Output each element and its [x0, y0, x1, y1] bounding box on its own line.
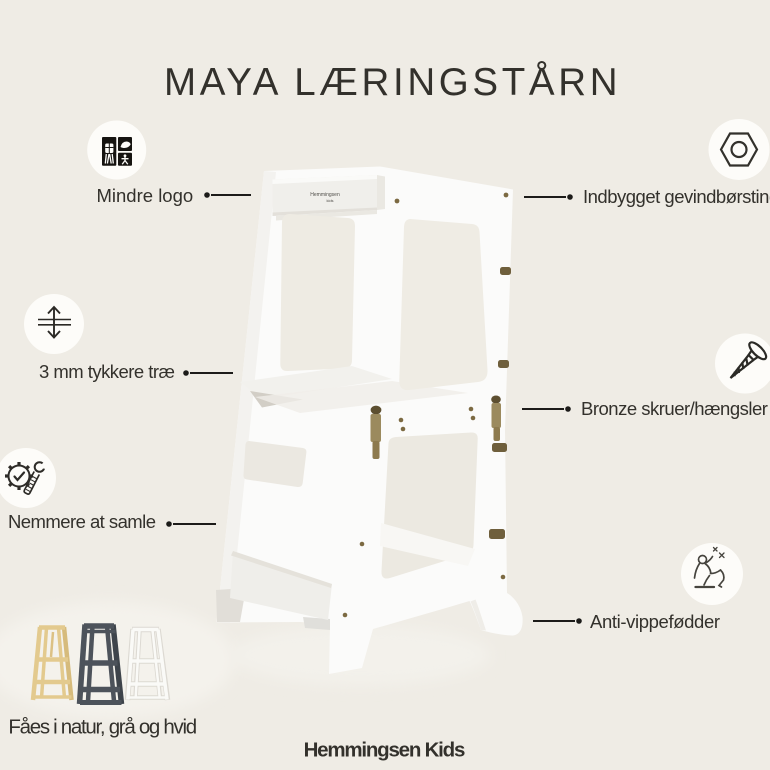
- svg-text:Mindre logo: Mindre logo: [97, 185, 194, 206]
- svg-text:Bronze skruer/hængsler: Bronze skruer/hængsler: [581, 398, 768, 419]
- svg-text:Indbygget gevindbørsting: Indbygget gevindbørsting: [583, 186, 770, 207]
- svg-text:kids: kids: [326, 198, 333, 203]
- svg-text:MAYA LÆRINGSTÅRN: MAYA LÆRINGSTÅRN: [164, 60, 621, 104]
- svg-text:Anti-vippefødder: Anti-vippefødder: [590, 611, 720, 632]
- svg-text:3 mm tykkere træ: 3 mm tykkere træ: [39, 361, 175, 382]
- svg-text:Hemmingsen Kids: Hemmingsen Kids: [304, 739, 465, 762]
- svg-text:Nemmere at samle: Nemmere at samle: [8, 511, 156, 532]
- svg-text:Fåes i natur, grå og hvid: Fåes i natur, grå og hvid: [8, 715, 196, 738]
- svg-text:Hemmingsen: Hemmingsen: [310, 192, 340, 198]
